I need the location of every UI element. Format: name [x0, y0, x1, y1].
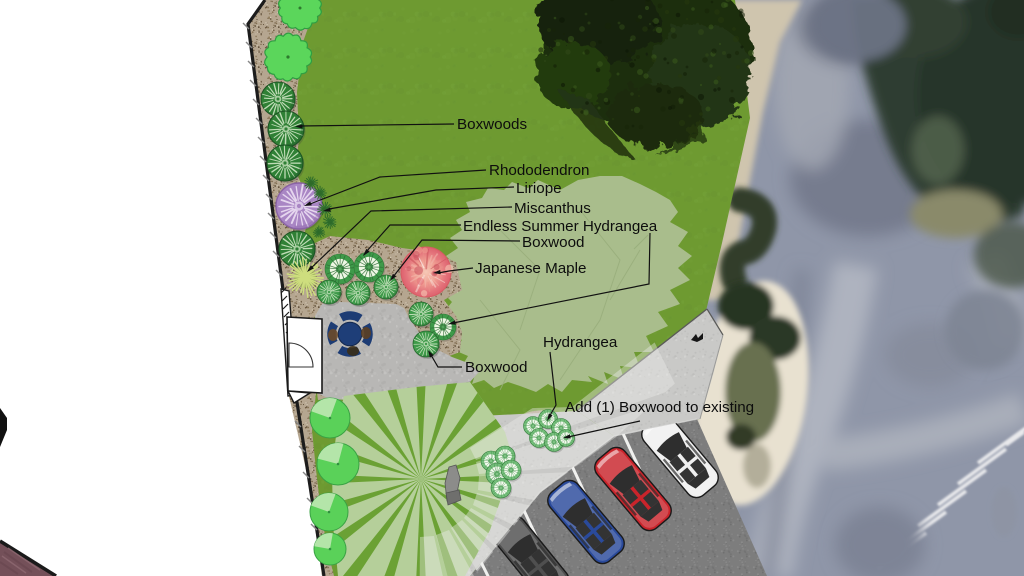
- svg-text:Hydrangea: Hydrangea: [543, 334, 618, 351]
- svg-text:Boxwood: Boxwood: [522, 234, 584, 251]
- svg-text:Boxwoods: Boxwoods: [457, 116, 527, 133]
- svg-text:Liriope: Liriope: [516, 180, 562, 197]
- svg-text:Miscanthus: Miscanthus: [514, 200, 591, 217]
- svg-text:Japanese Maple: Japanese Maple: [475, 260, 586, 277]
- svg-text:Add (1) Boxwood to existing: Add (1) Boxwood to existing: [565, 399, 754, 416]
- svg-text:Rhododendron: Rhododendron: [489, 162, 590, 179]
- svg-text:Endless Summer Hydrangea: Endless Summer Hydrangea: [463, 218, 658, 235]
- svg-text:Boxwood: Boxwood: [465, 359, 527, 376]
